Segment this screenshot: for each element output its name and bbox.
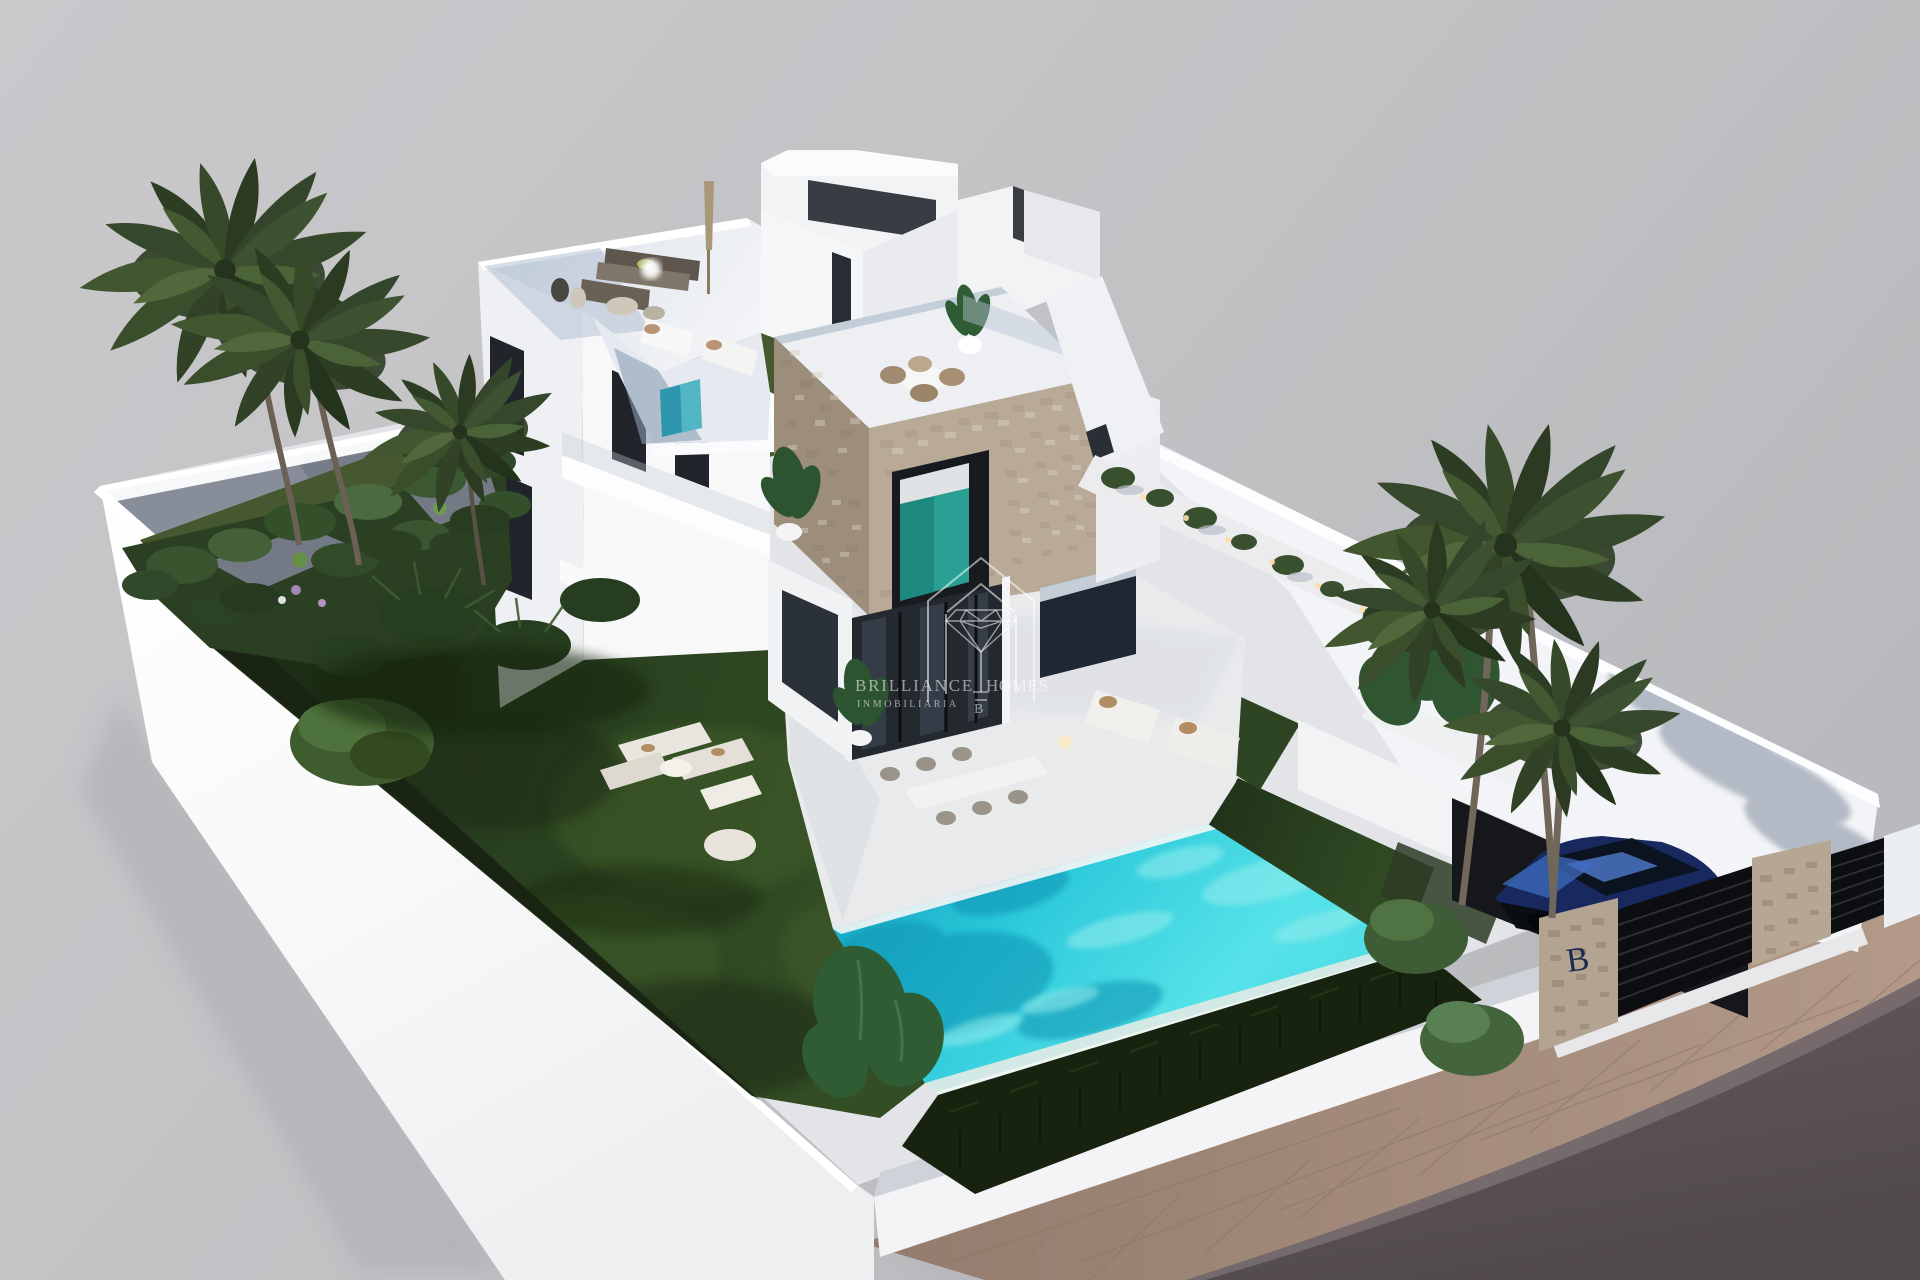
svg-text:B: B [974,702,983,717]
svg-text:INMOBILIARIA: INMOBILIARIA [857,699,959,710]
svg-text:HOMES: HOMES [986,676,1049,695]
svg-text:BRILLIANCE: BRILLIANCE [855,676,974,695]
